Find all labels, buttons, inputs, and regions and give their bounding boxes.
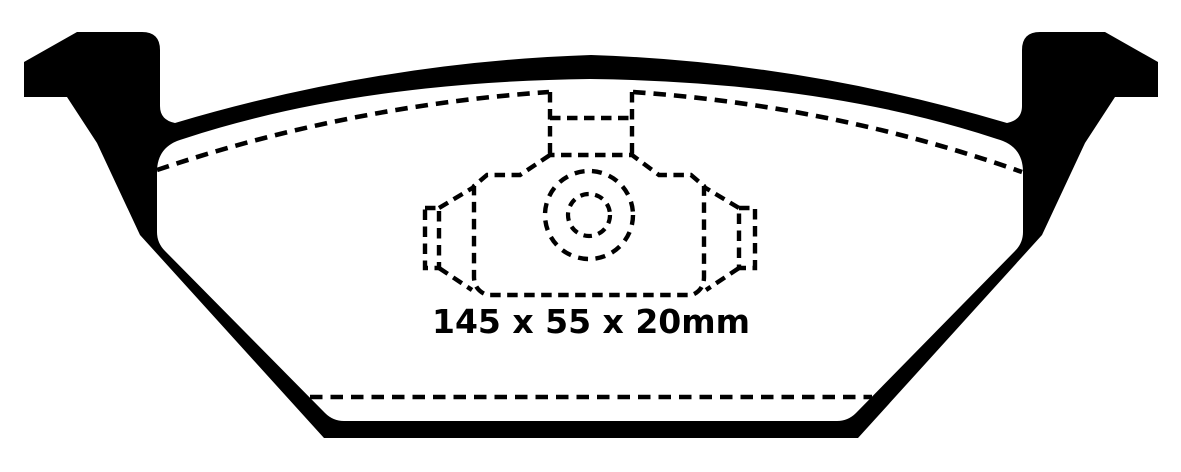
dimension-label: 145 x 55 x 20mm bbox=[432, 302, 750, 341]
pad-face bbox=[157, 79, 1023, 421]
brake-pad-diagram: 145 x 55 x 20mm bbox=[0, 0, 1181, 472]
brake-pad-drawing-canvas: 145 x 55 x 20mm bbox=[0, 0, 1181, 472]
